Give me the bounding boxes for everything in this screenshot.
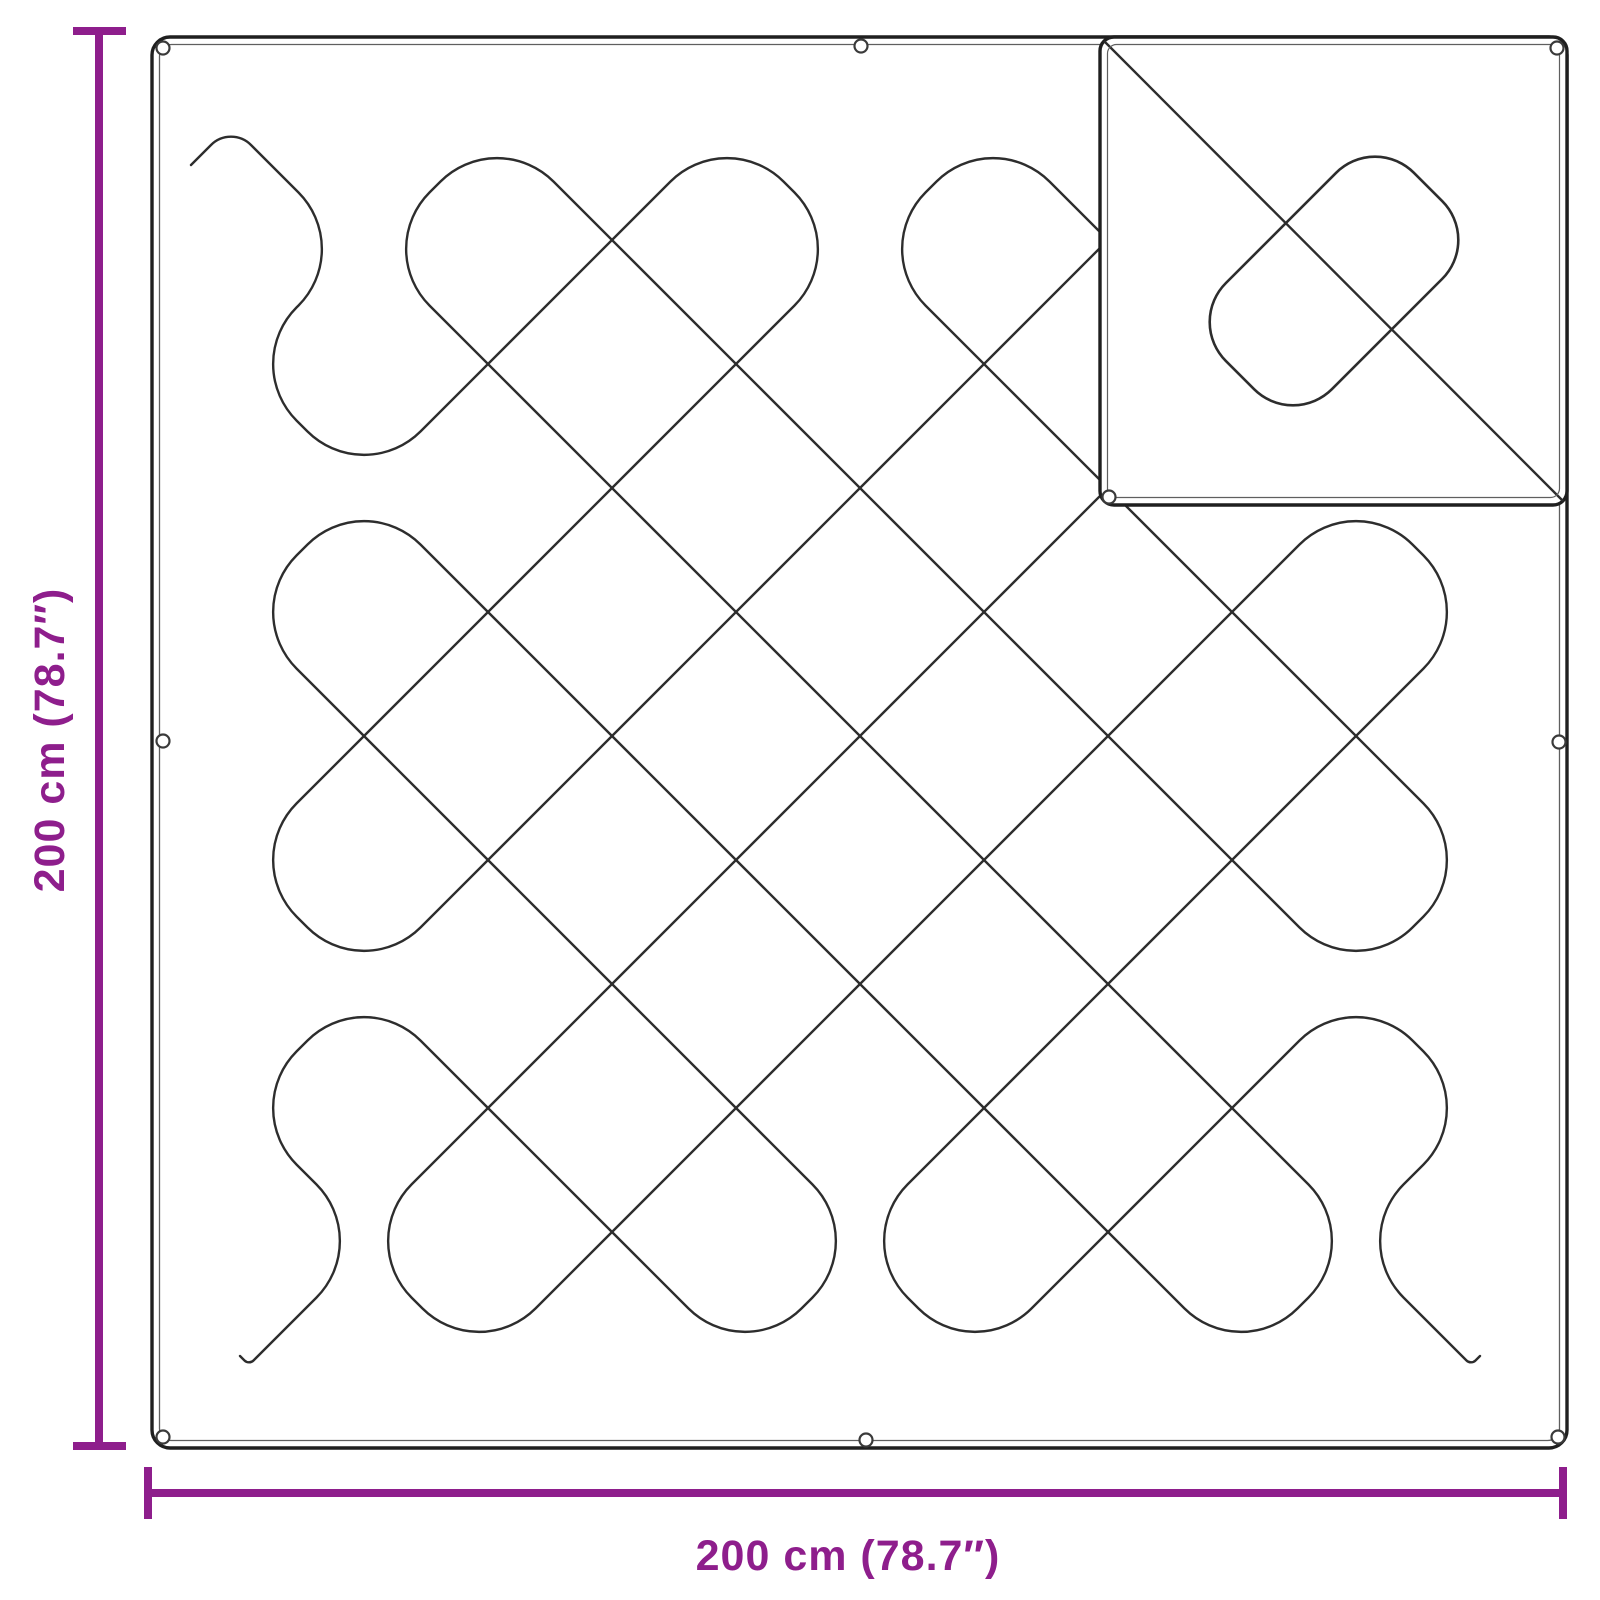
grommet-icon (1553, 736, 1566, 749)
width-dimension-line (148, 1467, 1563, 1519)
product-dimension-diagram: 200 cm (78.7″) 200 cm (78.7″) (0, 0, 1600, 1600)
grommet-icon (1552, 1431, 1565, 1444)
blanket-diagram-canvas (0, 0, 1600, 1600)
grommet-icon (157, 42, 170, 55)
grommet-icon (1103, 491, 1116, 504)
width-dimension-label: 200 cm (78.7″) (528, 1532, 1168, 1581)
grommet-icon (1551, 42, 1564, 55)
grommet-icon (855, 40, 868, 53)
height-dimension-line (73, 31, 126, 1446)
grommet-icon (157, 735, 170, 748)
grommet-icon (860, 1434, 873, 1447)
grommet-icon (157, 1431, 170, 1444)
stitch-detail-inset (1100, 37, 1567, 505)
height-dimension-label: 200 cm (78.7″) (26, 440, 78, 1040)
